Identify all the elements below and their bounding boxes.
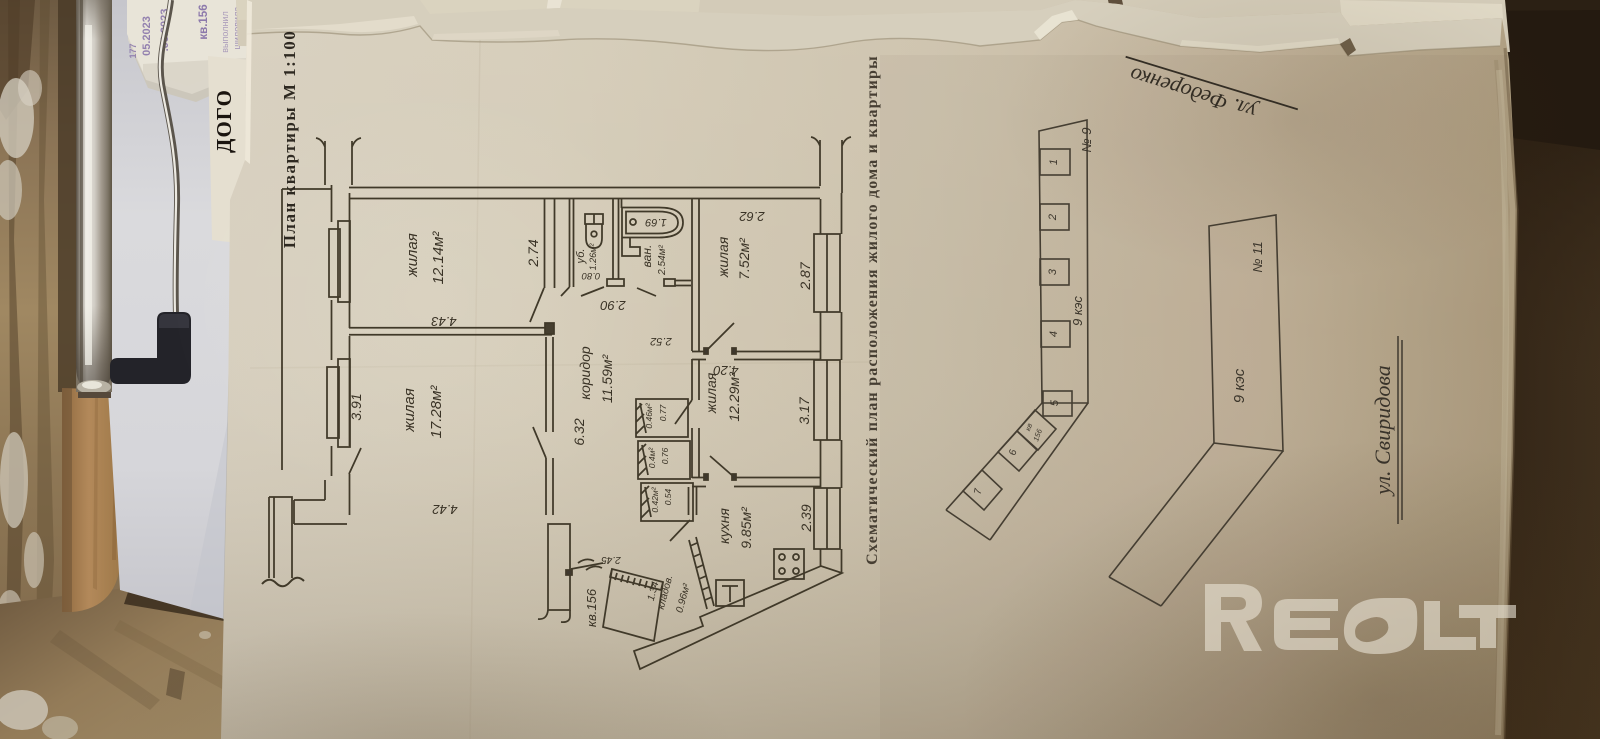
svg-text:ван.: ван. [640,245,654,268]
svg-text:1.26м²: 1.26м² [588,243,598,271]
svg-text:2.87: 2.87 [797,261,813,290]
svg-text:9.85м²: 9.85м² [738,506,754,549]
svg-text:кухня: кухня [716,508,732,544]
svg-text:17.28м²: 17.28м² [428,385,445,439]
svg-text:2.74: 2.74 [525,239,541,267]
svg-text:Схематический план расположени: Схематический план расположения жилого д… [864,55,881,565]
svg-text:12.14м²: 12.14м² [430,231,447,285]
svg-text:кв.156: кв.156 [198,4,210,39]
svg-text:жилая: жилая [715,236,731,278]
svg-text:0.76: 0.76 [660,447,670,464]
svg-text:6.32: 6.32 [571,418,587,445]
svg-text:177: 177 [128,43,138,58]
svg-text:ДОГО: ДОГО [212,89,236,153]
svg-text:05.2023: 05.2023 [141,16,153,56]
svg-text:ул. Свиридова: ул. Свиридова [1370,365,1395,497]
svg-text:2.90: 2.90 [600,298,627,313]
svg-text:выполнил: выполнил [220,11,230,52]
svg-text:4: 4 [1048,331,1060,337]
svg-text:План квартиры М 1:100: План квартиры М 1:100 [280,30,299,249]
svg-text:жилая: жилая [404,233,421,277]
svg-text:уб.: уб. [575,249,587,265]
svg-text:жилая: жилая [401,388,418,432]
svg-text:1: 1 [1048,159,1060,165]
svg-text:2.62: 2.62 [739,209,766,224]
svg-text:7.52м²: 7.52м² [736,237,752,280]
svg-text:4.43: 4.43 [431,314,457,329]
svg-text:0.4м²: 0.4м² [647,447,657,469]
svg-text:11.59м²: 11.59м² [599,354,615,404]
svg-text:2.52: 2.52 [650,335,672,347]
svg-text:9 кэс: 9 кэс [1231,368,1248,403]
svg-text:4.20: 4.20 [713,363,739,378]
svg-text:3.17: 3.17 [796,396,812,424]
svg-text:2.54м²: 2.54м² [657,245,668,276]
svg-text:3: 3 [1047,268,1059,275]
svg-text:0.80: 0.80 [581,270,600,281]
svg-text:0.77: 0.77 [658,404,668,421]
svg-text:№ 9: № 9 [1079,128,1094,153]
svg-text:0.54: 0.54 [663,488,673,505]
svg-text:2.45: 2.45 [601,554,622,565]
svg-text:№ 11: № 11 [1250,241,1265,272]
svg-text:0.42м²: 0.42м² [650,486,660,512]
svg-text:1.69: 1.69 [645,216,666,228]
svg-text:5: 5 [1049,399,1061,406]
svg-text:4.42: 4.42 [432,502,458,517]
svg-text:9 кэс: 9 кэс [1070,296,1085,326]
svg-text:0.46м²: 0.46м² [644,402,654,428]
svg-text:коридор: коридор [577,346,593,399]
svg-text:кв.156: кв.156 [584,588,599,627]
svg-text:2: 2 [1047,214,1059,221]
svg-text:2.39: 2.39 [798,504,814,532]
svg-text:3.91: 3.91 [348,393,364,420]
